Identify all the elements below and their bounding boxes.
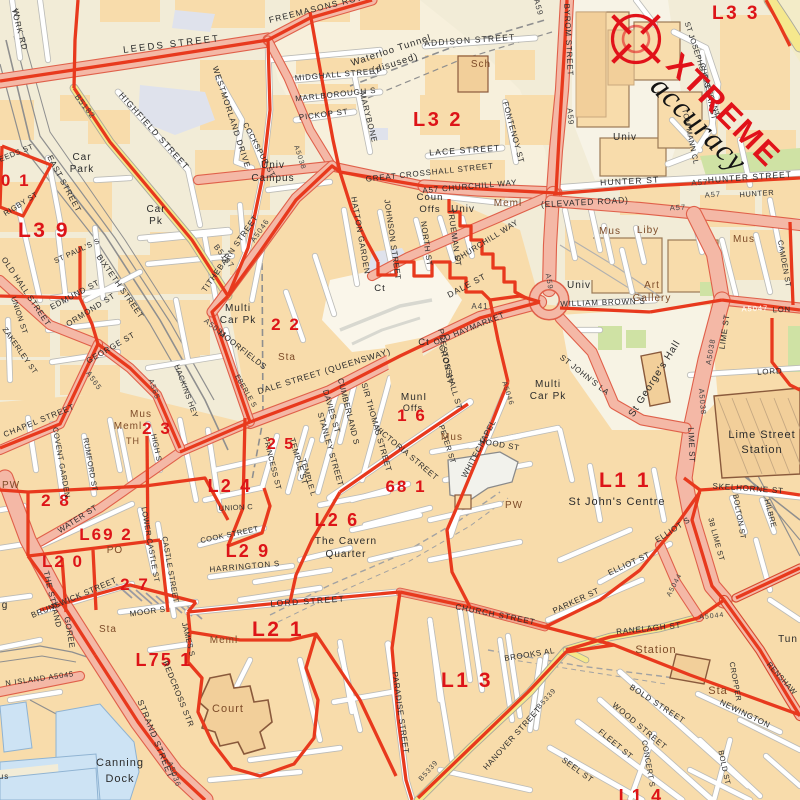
- svg-text:L1 1: L1 1: [599, 469, 651, 492]
- svg-text:2 2: 2 2: [271, 315, 301, 334]
- svg-text:Mus: Mus: [441, 432, 463, 443]
- svg-text:Dock: Dock: [105, 773, 134, 785]
- svg-text:68 1: 68 1: [385, 477, 426, 496]
- svg-text:2 5: 2 5: [267, 436, 295, 453]
- svg-text:L69 2: L69 2: [79, 525, 132, 544]
- svg-text:Mus: Mus: [599, 226, 621, 237]
- svg-text:A5047: A5047: [741, 304, 768, 314]
- svg-text:Sta: Sta: [708, 685, 728, 697]
- svg-text:Quarter: Quarter: [326, 549, 367, 560]
- svg-text:PW: PW: [2, 480, 20, 491]
- svg-text:Pk: Pk: [149, 216, 163, 227]
- svg-text:Court: Court: [212, 703, 244, 715]
- svg-text:UNION C: UNION C: [218, 502, 253, 513]
- svg-text:Univ: Univ: [261, 160, 285, 171]
- svg-text:Multi: Multi: [225, 303, 251, 314]
- svg-text:St John's Centre: St John's Centre: [569, 496, 666, 508]
- svg-text:L2 0: L2 0: [42, 552, 84, 571]
- svg-text:Mus: Mus: [733, 234, 755, 245]
- svg-text:A59: A59: [565, 108, 575, 126]
- svg-text:A57: A57: [691, 178, 709, 188]
- svg-text:The Cavern: The Cavern: [315, 536, 377, 547]
- svg-text:Tun: Tun: [778, 634, 798, 645]
- svg-text:Sta: Sta: [99, 624, 117, 635]
- svg-text:L1 4: L1 4: [619, 786, 664, 800]
- svg-text:Meml: Meml: [210, 635, 238, 646]
- svg-text:Ct: Ct: [374, 283, 386, 294]
- svg-text:us: us: [0, 772, 9, 781]
- svg-text:Univ: Univ: [613, 132, 637, 143]
- svg-text:L1 3: L1 3: [441, 669, 493, 692]
- svg-text:LIME ST: LIME ST: [686, 427, 696, 463]
- svg-text:Sta: Sta: [278, 352, 296, 363]
- svg-text:Mus: Mus: [130, 409, 152, 420]
- svg-text:L3 9: L3 9: [18, 219, 70, 242]
- svg-text:Car Pk: Car Pk: [530, 391, 567, 402]
- svg-text:Campus: Campus: [251, 173, 294, 184]
- svg-text:Meml: Meml: [114, 421, 142, 432]
- svg-text:2 7: 2 7: [120, 575, 150, 594]
- svg-text:Station: Station: [741, 444, 782, 456]
- svg-text:Offs: Offs: [419, 204, 440, 215]
- svg-text:PO: PO: [107, 545, 123, 556]
- svg-text:Car Pk: Car Pk: [220, 315, 257, 326]
- svg-text:Ct: Ct: [418, 337, 430, 348]
- svg-text:Station: Station: [635, 644, 676, 656]
- svg-text:LON: LON: [773, 305, 792, 315]
- svg-text:PW: PW: [505, 500, 523, 511]
- svg-text:L3 3: L3 3: [712, 3, 760, 24]
- svg-text:Multi: Multi: [535, 379, 561, 390]
- svg-text:A57: A57: [704, 189, 721, 199]
- svg-text:Univ: Univ: [451, 204, 475, 215]
- svg-text:1 6: 1 6: [397, 406, 427, 425]
- svg-text:L3 2: L3 2: [413, 109, 463, 131]
- svg-text:LORD: LORD: [757, 366, 783, 377]
- svg-text:Liby: Liby: [637, 225, 659, 236]
- svg-text:Lime Street: Lime Street: [728, 429, 795, 441]
- svg-text:Meml: Meml: [494, 198, 522, 209]
- svg-text:L2 1: L2 1: [252, 618, 304, 641]
- svg-text:Univ: Univ: [567, 280, 591, 291]
- svg-text:Car: Car: [72, 152, 91, 163]
- svg-text:Canning: Canning: [96, 757, 144, 769]
- svg-text:70 1: 70 1: [0, 171, 31, 190]
- svg-text:A41: A41: [471, 302, 488, 311]
- svg-text:Car: Car: [146, 204, 165, 215]
- svg-text:Park: Park: [70, 164, 95, 175]
- svg-text:MunI: MunI: [401, 392, 427, 403]
- svg-text:L2 4: L2 4: [208, 476, 253, 496]
- svg-text:TH: TH: [126, 436, 140, 446]
- svg-text:Sch: Sch: [471, 59, 491, 70]
- svg-text:L2 9: L2 9: [226, 541, 271, 561]
- svg-text:Art: Art: [644, 280, 660, 291]
- svg-text:L2 6: L2 6: [315, 510, 360, 530]
- svg-text:A57: A57: [669, 203, 686, 213]
- svg-text:g: g: [2, 600, 9, 611]
